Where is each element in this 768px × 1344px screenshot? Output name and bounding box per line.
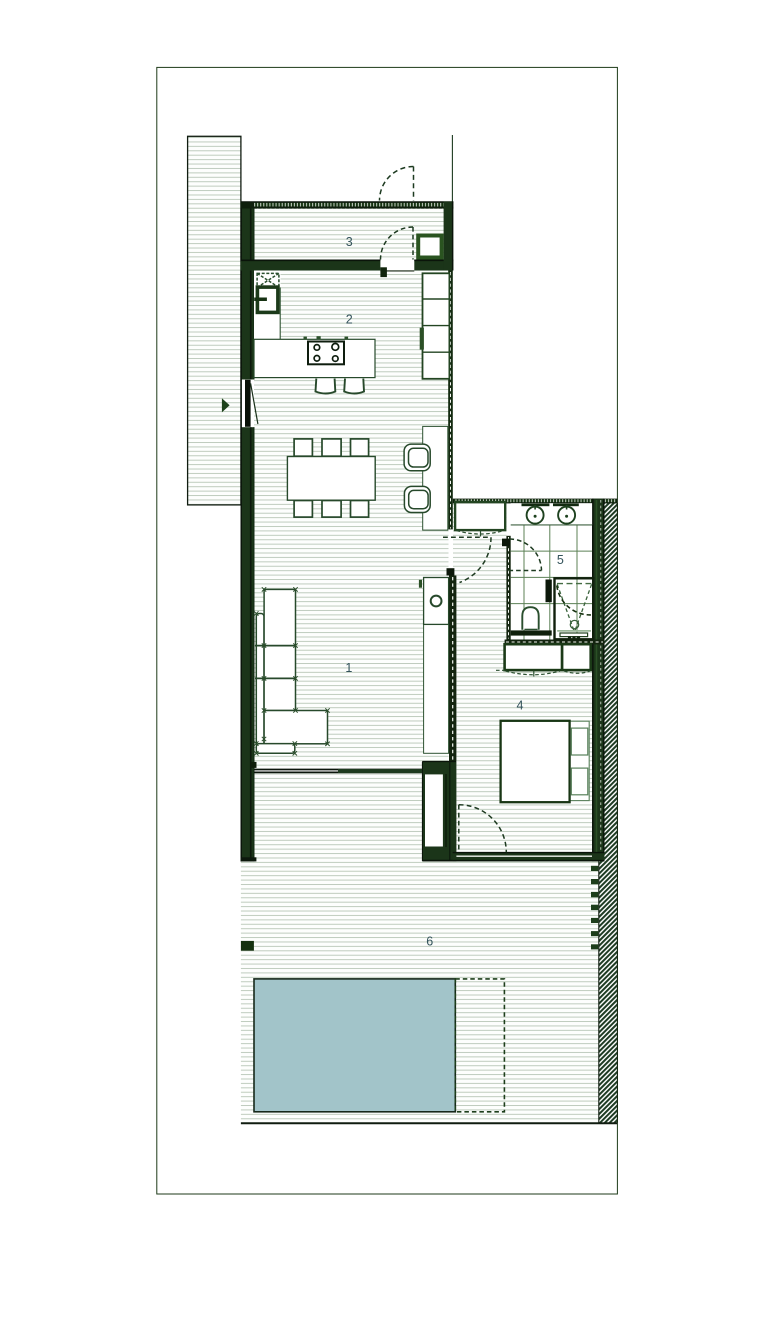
- svg-text:4: 4: [517, 699, 524, 713]
- svg-text:2: 2: [346, 313, 353, 327]
- svg-text:6: 6: [426, 935, 433, 949]
- svg-text:5: 5: [557, 553, 564, 567]
- svg-text:1: 1: [345, 661, 352, 675]
- svg-text:3: 3: [346, 235, 353, 249]
